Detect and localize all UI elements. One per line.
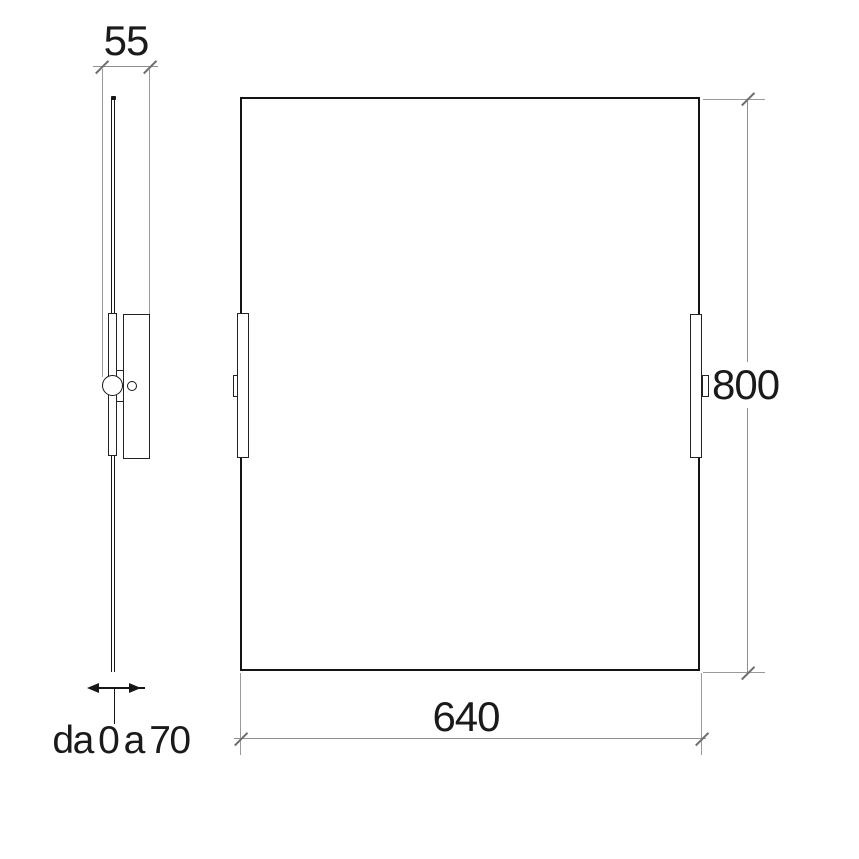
dim-width-label: 640 [416, 696, 516, 738]
glass-edge-cap [111, 96, 116, 100]
extension-line-width-left [240, 673, 241, 755]
extension-line-depth-right [149, 69, 150, 315]
pivot-knob-circle [102, 375, 123, 396]
extension-line-depth-left [102, 69, 103, 377]
extension-line-height-top [703, 99, 765, 100]
mirror-outline [240, 97, 700, 671]
arrow-left-head-icon [87, 683, 99, 693]
screw-hole-circle [127, 381, 137, 391]
extension-line-height-bottom [703, 672, 765, 673]
adjustment-range-label: da 0 a 70 [45, 721, 197, 760]
left-bracket-tab [233, 375, 239, 397]
dim-height-label: 800 [709, 362, 782, 408]
arrow-right-head-icon [129, 683, 141, 693]
technical-drawing-canvas: 55 da 0 a 70 [0, 0, 859, 859]
extension-line-width-right [701, 673, 702, 755]
right-bracket [690, 314, 702, 458]
right-bracket-tab [702, 375, 709, 397]
left-bracket [237, 313, 249, 458]
dim-depth-label: 55 [101, 20, 151, 62]
